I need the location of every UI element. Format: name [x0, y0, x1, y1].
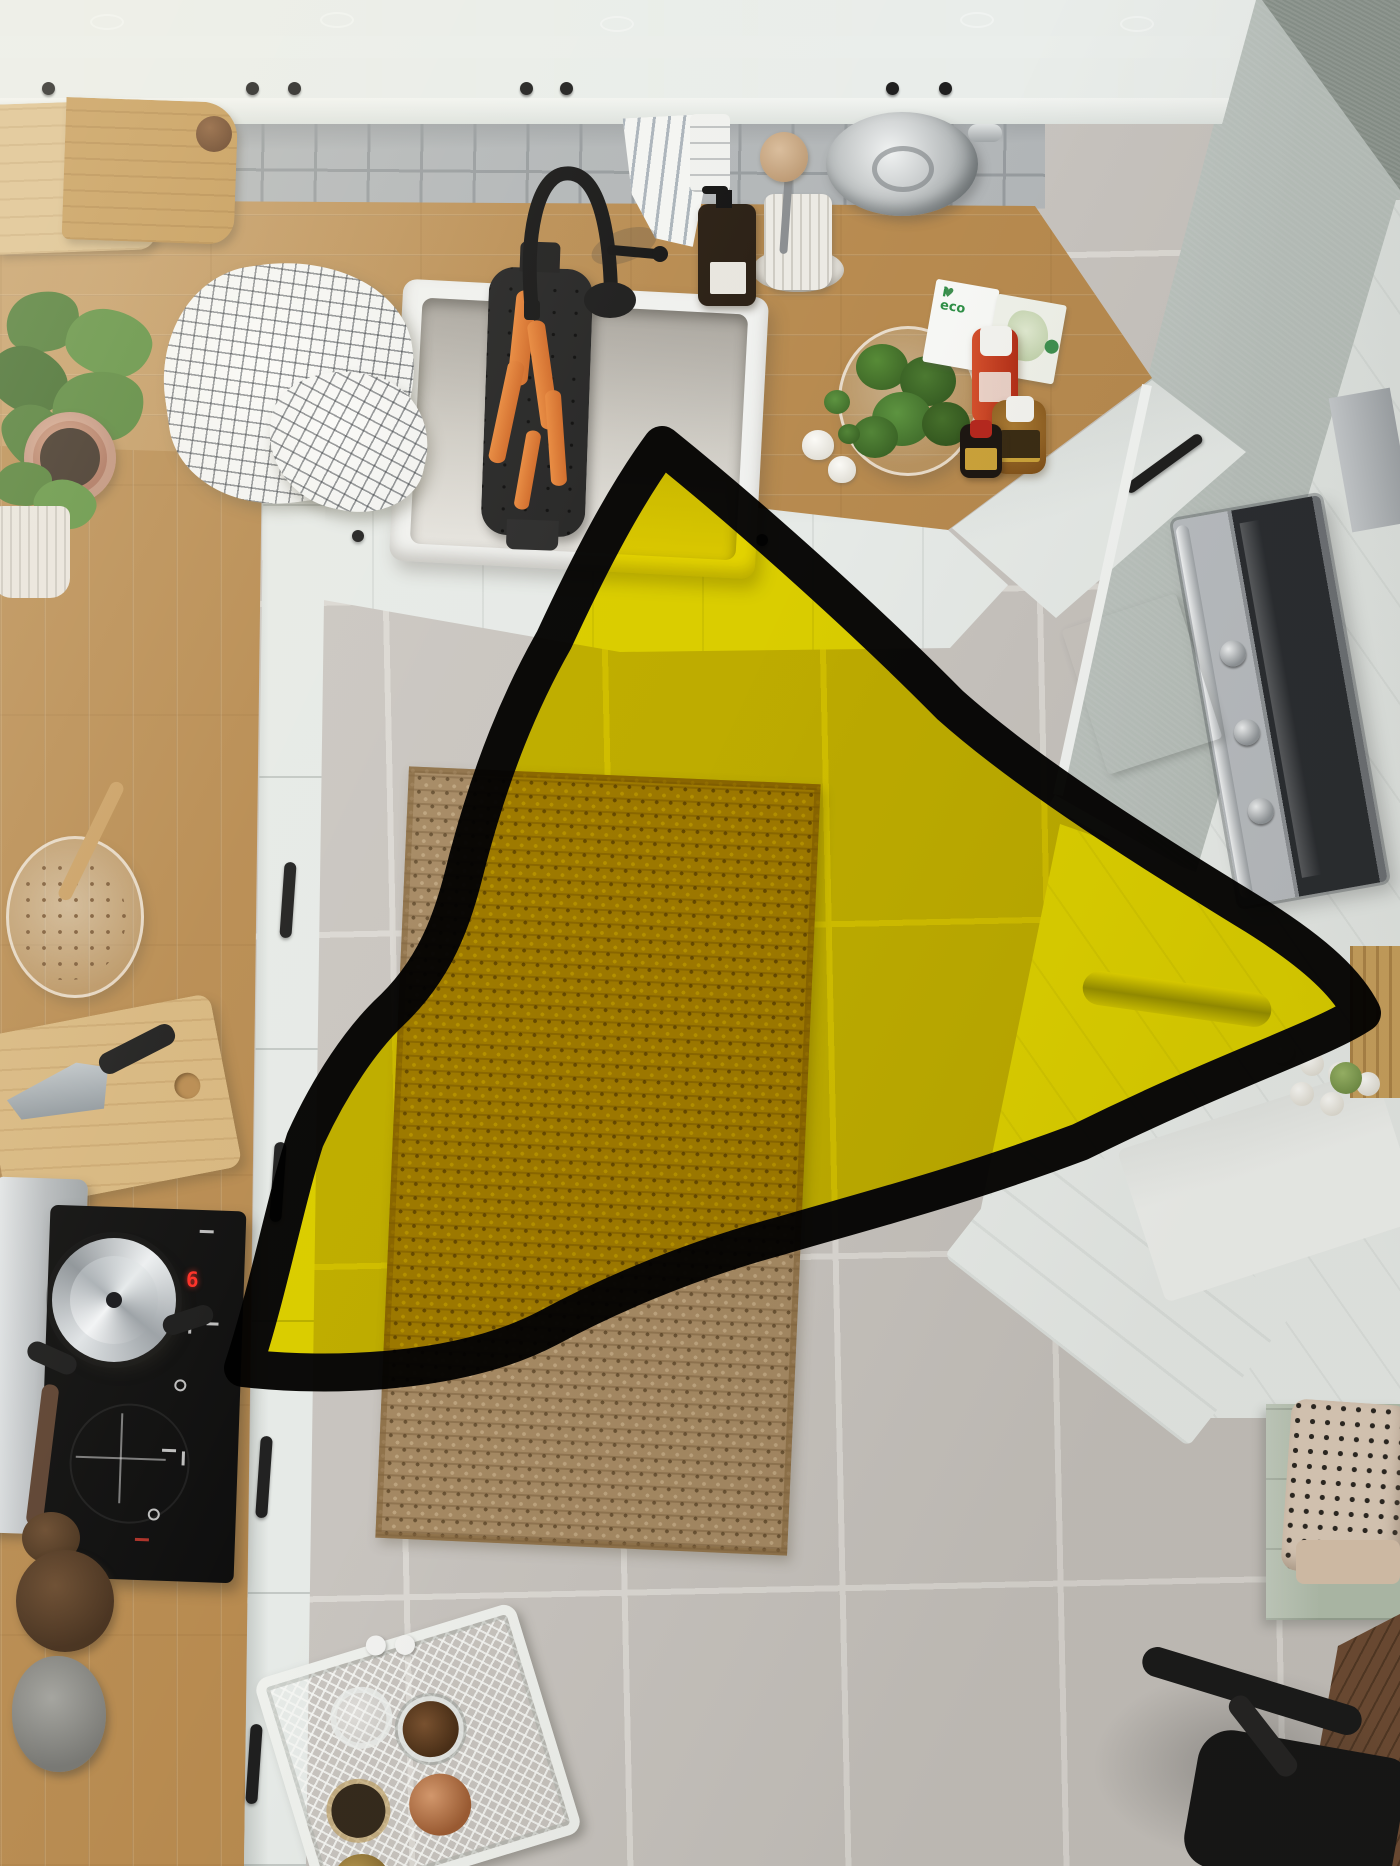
- oven-knob: [1246, 796, 1276, 826]
- soy-sauce-bottle: [960, 424, 1002, 478]
- cabinet-knob: [560, 82, 573, 95]
- utensil-cup: [764, 194, 832, 290]
- soap-label: [710, 262, 746, 294]
- steel-colander: [826, 112, 978, 216]
- wine-glass: [90, 14, 124, 30]
- cooktop-icon: [135, 1538, 149, 1541]
- soap-spout: [702, 186, 728, 194]
- cabinet-knob: [756, 534, 768, 546]
- stone-mortar: [12, 1656, 106, 1772]
- wooden-spoon-head: [196, 116, 232, 152]
- wine-glass: [1120, 16, 1154, 32]
- steel-pot: [52, 1238, 176, 1362]
- plate-stack: [690, 114, 730, 192]
- broccoli-floret: [824, 390, 850, 414]
- board-hole: [172, 1071, 202, 1101]
- wine-glass: [320, 12, 354, 28]
- wine-glass: [960, 12, 994, 28]
- door-rail: [0, 36, 1230, 58]
- lid-knob: [106, 1292, 122, 1308]
- cooktop-icon: [174, 1379, 186, 1391]
- bottle-cap: [980, 326, 1012, 356]
- garlic-bulb: [802, 430, 834, 460]
- dish-brush: [760, 132, 808, 182]
- bottle-cap: [970, 420, 992, 438]
- jute-rug: [375, 766, 820, 1555]
- burner-ring: [68, 1402, 192, 1526]
- cabinet-knob: [886, 82, 899, 95]
- cabinet-knob: [939, 82, 952, 95]
- kitchen-scene: i♥ eco 6: [0, 0, 1400, 1866]
- egg: [1320, 1092, 1344, 1116]
- beige-cushion: [1296, 1540, 1400, 1584]
- garlic-bulb: [828, 456, 856, 483]
- wine-glass: [600, 16, 634, 32]
- oven-knob: [1232, 717, 1262, 747]
- cabinet-knob: [520, 82, 533, 95]
- oven-knob: [1218, 638, 1248, 668]
- colander-handle: [968, 124, 1002, 142]
- eco-text: i♥ eco: [941, 286, 955, 301]
- bottle-label: [965, 448, 997, 470]
- cabinet-knob: [42, 82, 55, 95]
- bottle-cap: [1006, 396, 1034, 422]
- colander-bracket: [506, 519, 559, 551]
- white-plant-pot: [0, 506, 70, 598]
- egg: [1290, 1082, 1314, 1106]
- cabinet-knob: [288, 82, 301, 95]
- soap-bottle: [698, 204, 756, 306]
- eco-word: eco: [939, 299, 966, 316]
- colander-base-ring: [872, 146, 934, 192]
- cabinet-knob: [352, 530, 364, 542]
- broccoli-floret: [838, 424, 860, 444]
- bottle-label: [1000, 430, 1040, 462]
- cooktop-power-display: 6: [186, 1267, 199, 1291]
- wooden-plate: [16, 1550, 114, 1652]
- pickle-jar: [1330, 1062, 1362, 1094]
- colander-hook: [520, 241, 561, 272]
- egg: [1300, 1052, 1324, 1076]
- cabinet-knob: [246, 82, 259, 95]
- cooktop-icon: [200, 1230, 214, 1233]
- egg: [1272, 1042, 1296, 1066]
